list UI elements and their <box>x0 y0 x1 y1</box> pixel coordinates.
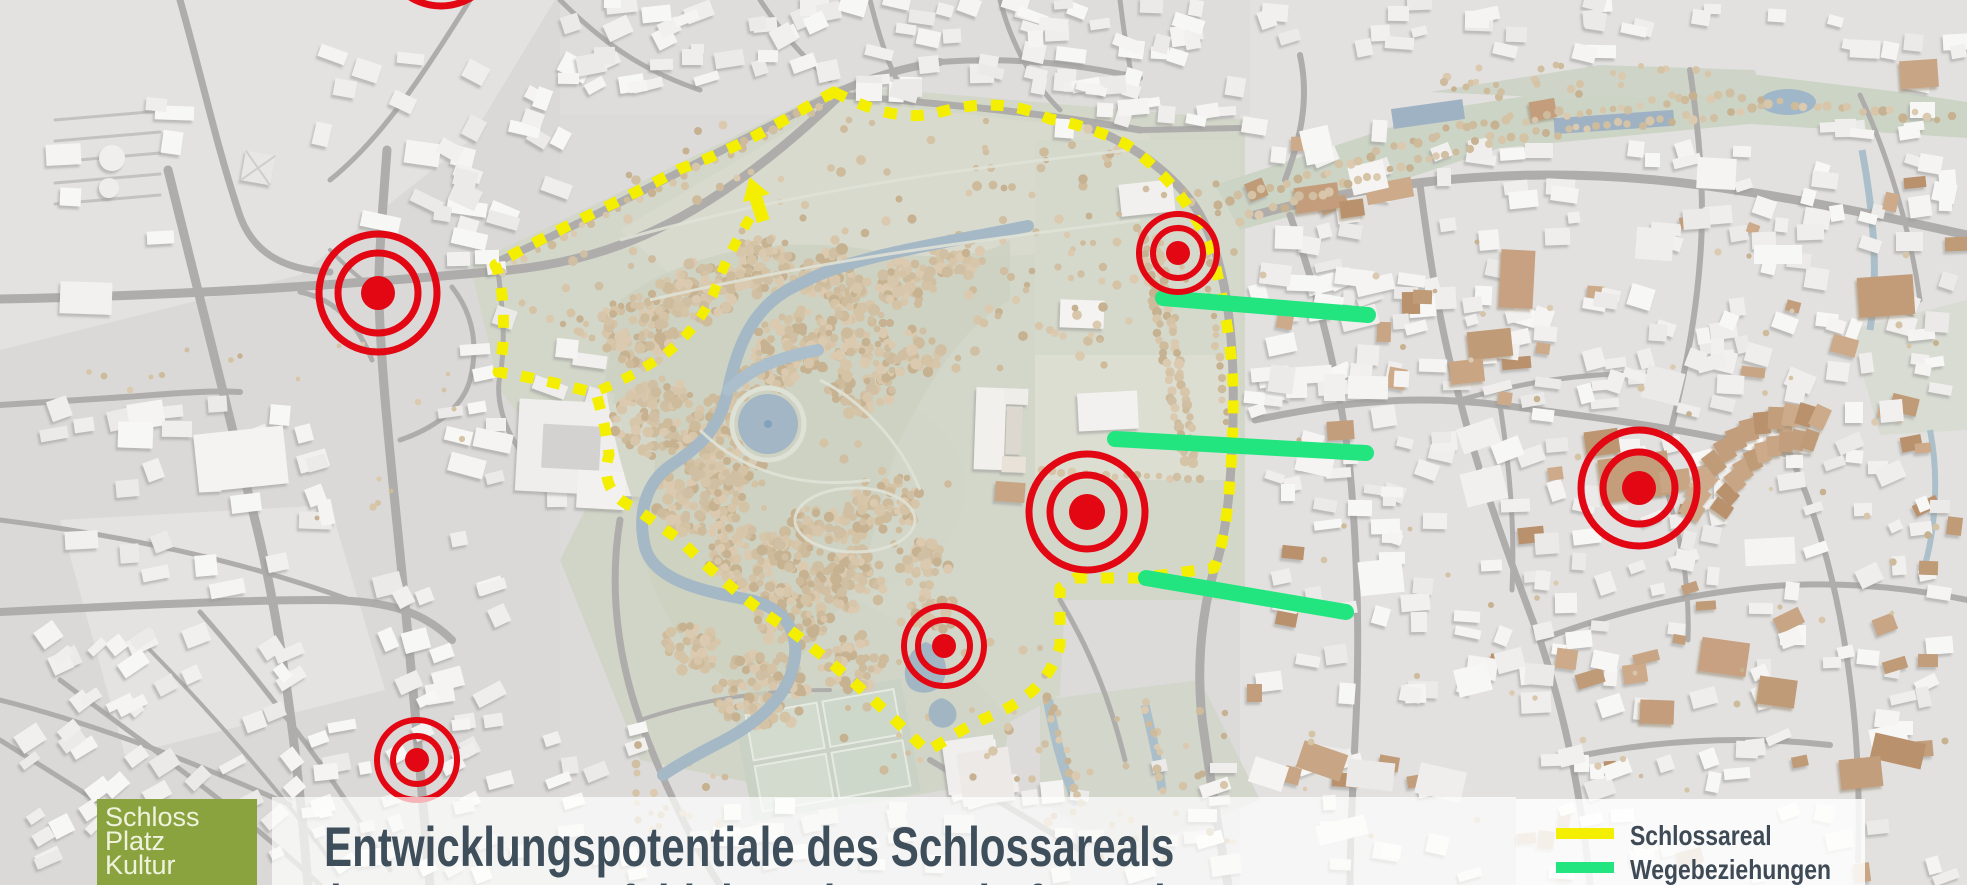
svg-text:Wegebeziehungen: Wegebeziehungen <box>1630 855 1831 885</box>
svg-text:Schlossareal: Schlossareal <box>1630 821 1772 852</box>
svg-text:Entwicklungspotentiale des Sch: Entwicklungspotentiale des Schlossareals <box>324 815 1174 878</box>
svg-text:im Spannungsfeld der Wissensch: im Spannungsfeld der Wissenschaftsstadt … <box>330 873 1355 885</box>
svg-text:Kultur: Kultur <box>105 850 176 880</box>
